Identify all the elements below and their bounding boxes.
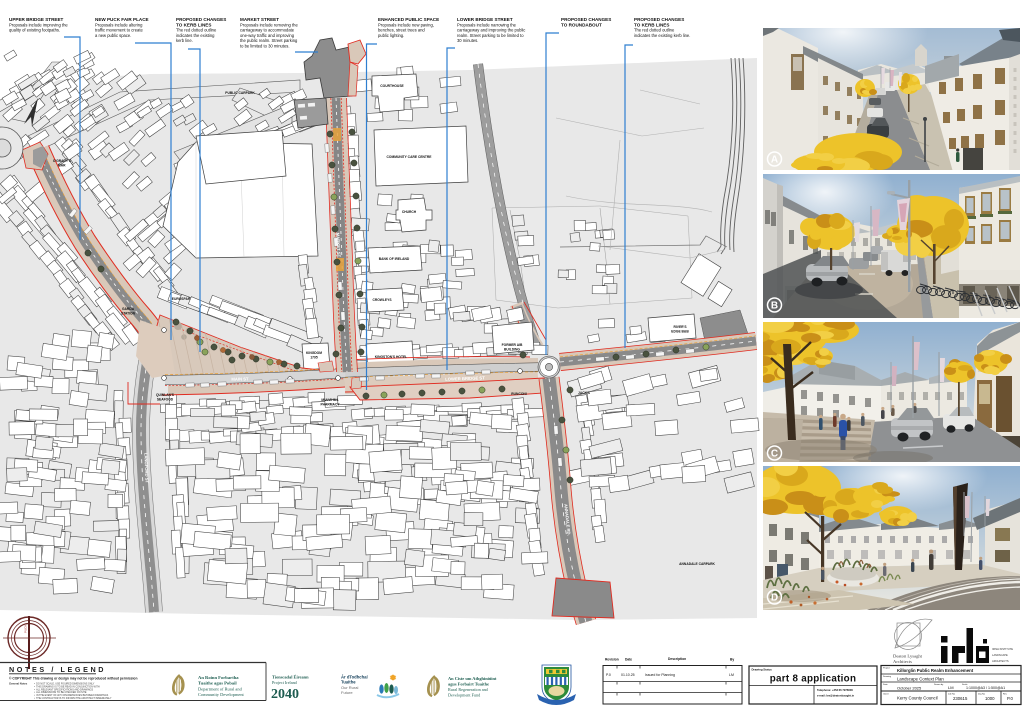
svg-text:QUINLAN'S: QUINLAN'S	[156, 393, 175, 397]
svg-text:indicates the existing kerb li: indicates the existing kerb line.	[634, 33, 690, 38]
svg-text:KINGDOM: KINGDOM	[306, 351, 322, 355]
svg-text:UPPER BRIDGE STREET: UPPER BRIDGE STREET	[9, 17, 64, 22]
svg-text:Kerry County Council: Kerry County Council	[897, 696, 938, 701]
svg-text:P.0: P.0	[606, 673, 611, 677]
svg-text:a new public space.: a new public space.	[95, 33, 131, 38]
svg-text:LANGFORD ST: LANGFORD ST	[143, 453, 149, 484]
svg-text:• THE CONTRACTOR IS TO INFORM: • THE CONTRACTOR IS TO INFORM THE ARCHIT…	[34, 697, 112, 700]
svg-text:CHURCH: CHURCH	[402, 210, 417, 214]
svg-text:BANK OF IRELAND: BANK OF IRELAND	[379, 257, 410, 261]
svg-text:Project Ireland: Project Ireland	[272, 680, 298, 685]
svg-text:one-way traffic and improving: one-way traffic and improving	[240, 33, 295, 38]
svg-text:public lighting.: public lighting.	[378, 33, 404, 38]
svg-text:FORMER AIB: FORMER AIB	[502, 343, 523, 347]
svg-text:Drawing: Drawing	[883, 675, 892, 678]
svg-text:Telephone: +353 66 7976600: Telephone: +353 66 7976600	[817, 688, 853, 692]
svg-text:LOWER BRIDGE STREET: LOWER BRIDGE STREET	[457, 17, 513, 22]
svg-text:Future: Future	[341, 690, 353, 695]
svg-text:RIVER'S: RIVER'S	[673, 325, 687, 329]
svg-text:IRISH INSTITUTE: IRISH INSTITUTE	[992, 647, 1013, 651]
svg-text:KINGSTON'S HOTEL: KINGSTON'S HOTEL	[375, 355, 407, 359]
svg-text:Landscape Context Plan: Landscape Context Plan	[897, 677, 944, 682]
svg-text:COURTHOUSE: COURTHOUSE	[380, 84, 404, 88]
svg-text:indicates the existing: indicates the existing	[176, 33, 215, 38]
svg-text:PROPOSED CHANGES: PROPOSED CHANGES	[561, 17, 611, 22]
svg-text:Development Fund: Development Fund	[448, 693, 481, 698]
svg-text:1795: 1795	[310, 356, 318, 360]
svg-text:The red dotted outline: The red dotted outline	[176, 28, 217, 33]
svg-text:LANDSCAPE: LANDSCAPE	[992, 653, 1008, 657]
svg-text:30 minutes.: 30 minutes.	[457, 38, 478, 43]
svg-text:Tuaithe agus Pobail: Tuaithe agus Pobail	[198, 681, 237, 686]
svg-text:Drawing Status: Drawing Status	[752, 668, 773, 672]
svg-text:to be limited to 30 minutes.: to be limited to 30 minutes.	[240, 44, 289, 49]
svg-text:BUILDING: BUILDING	[504, 348, 520, 352]
svg-text:kerb line.: kerb line.	[176, 38, 193, 43]
svg-text:Department of Rural and: Department of Rural and	[198, 687, 243, 692]
svg-text:LM: LM	[948, 685, 954, 690]
svg-text:TO KERB LINES: TO KERB LINES	[176, 22, 211, 27]
svg-text:quality of existing footpaths.: quality of existing footpaths.	[9, 28, 60, 33]
svg-text:Proposals include improving th: Proposals include improving the	[9, 22, 68, 27]
svg-text:Community Development: Community Development	[198, 692, 245, 697]
svg-text:Proposals include altering: Proposals include altering	[95, 22, 143, 27]
svg-text:© COPYRIGHT This drawing or de: © COPYRIGHT This drawing or design may n…	[9, 677, 137, 681]
svg-text:TO ROUNDABOUT: TO ROUNDABOUT	[561, 22, 602, 27]
svg-text:Tionscadal Éireann: Tionscadal Éireann	[272, 675, 309, 680]
svg-text:Date: Date	[625, 658, 632, 662]
svg-text:An Roinn Forbartha: An Roinn Forbartha	[198, 675, 239, 680]
svg-text:part 8 application: part 8 application	[770, 674, 857, 685]
svg-text:Project: Project	[883, 667, 890, 670]
svg-text:O'GRADY'S: O'GRADY'S	[53, 159, 72, 163]
svg-text:NOTES / LEGEND: NOTES / LEGEND	[9, 665, 106, 674]
svg-text:Killorglin Public Realm Enhanc: Killorglin Public Realm Enhancement	[897, 668, 974, 673]
svg-text:General Notes: General Notes	[9, 682, 28, 686]
svg-text:the public realm. Street parki: the public realm. Street parking	[240, 38, 298, 43]
svg-text:GARDA: GARDA	[122, 307, 135, 311]
svg-text:C: C	[771, 449, 778, 460]
svg-text:Date: Date	[883, 683, 888, 686]
svg-text:LM: LM	[729, 673, 734, 677]
svg-text:MARKET STREET: MARKET STREET	[240, 17, 279, 22]
svg-text:Issued for Planning: Issued for Planning	[645, 673, 675, 677]
svg-text:COMMUNITY CARE CENTRE: COMMUNITY CARE CENTRE	[387, 155, 433, 159]
svg-text:PUBLIC CARPARK: PUBLIC CARPARK	[225, 91, 255, 95]
svg-text:Revision: Revision	[605, 658, 619, 662]
svg-text:Architects: Architects	[893, 659, 912, 664]
svg-text:carriageway and improving the: carriageway and improving the public	[457, 28, 525, 33]
svg-text:ENHANCED PUBLIC SPACE: ENHANCED PUBLIC SPACE	[378, 17, 439, 22]
svg-text:realm. Street parking to be li: realm. Street parking to be limited to	[457, 33, 524, 38]
svg-text:SEAFOOD: SEAFOOD	[157, 398, 174, 402]
svg-text:PHARMACY: PHARMACY	[320, 403, 340, 407]
svg-text:D: D	[771, 593, 778, 604]
svg-text:MAIN ST: MAIN ST	[231, 376, 249, 381]
svg-text:EUROSPAR: EUROSPAR	[172, 297, 191, 301]
svg-text:benches, street trees and: benches, street trees and	[378, 28, 425, 33]
svg-text:NEW PUCK FAIR PLACE: NEW PUCK FAIR PLACE	[95, 17, 149, 22]
svg-text:October 2025: October 2025	[897, 686, 922, 691]
svg-text:Proposals include removing the: Proposals include removing the	[240, 22, 298, 27]
svg-text:Proposals include new paving,: Proposals include new paving,	[378, 22, 434, 27]
svg-text:PUCK: PUCK	[24, 625, 28, 633]
svg-text:carriageway to accommodate: carriageway to accommodate	[240, 28, 295, 33]
svg-text:Tuaithe: Tuaithe	[341, 680, 356, 685]
svg-text:CROWLEYS: CROWLEYS	[372, 298, 392, 302]
svg-text:RUNCONI: RUNCONI	[511, 392, 526, 396]
svg-text:B: B	[771, 301, 778, 312]
svg-text:ARCHITECTS: ARCHITECTS	[992, 659, 1009, 663]
svg-text:P.0: P.0	[1007, 696, 1014, 701]
svg-text:A: A	[771, 155, 778, 166]
svg-text:Deaton Lysaght: Deaton Lysaght	[893, 654, 923, 659]
svg-text:MULVIHILL: MULVIHILL	[321, 398, 338, 402]
svg-text:BAR: BAR	[58, 164, 66, 168]
svg-text:agus Forbairt Tuaithe: agus Forbairt Tuaithe	[448, 682, 489, 687]
svg-text:An Ciste um Athghiniúint: An Ciste um Athghiniúint	[448, 676, 497, 681]
svg-text:1:1000@A3 / 1:500@A1: 1:1000@A3 / 1:500@A1	[966, 686, 1005, 690]
svg-text:JACK'S: JACK'S	[578, 391, 591, 395]
svg-text:EDGE B&B: EDGE B&B	[671, 330, 689, 334]
svg-text:traffic movement to create: traffic movement to create	[95, 28, 143, 33]
svg-text:Rural Regeneration and: Rural Regeneration and	[448, 687, 489, 692]
svg-text:ANNADALE CARPARK: ANNADALE CARPARK	[679, 562, 715, 566]
svg-text:Proposals include narrowing th: Proposals include narrowing the	[457, 22, 517, 27]
svg-text:e-mail: lee@deatonlysaght.ie: e-mail: lee@deatonlysaght.ie	[817, 694, 854, 698]
svg-text:PROPOSED CHANGES: PROPOSED CHANGES	[176, 17, 226, 22]
svg-text:Client: Client	[883, 693, 889, 696]
svg-text:230615: 230615	[953, 696, 968, 701]
svg-text:The red dotted outline: The red dotted outline	[634, 28, 675, 33]
svg-text:By: By	[730, 658, 734, 662]
svg-text:2040: 2040	[271, 687, 299, 702]
svg-text:PROPOSED CHANGES: PROPOSED CHANGES	[634, 17, 684, 22]
svg-text:1000: 1000	[985, 696, 995, 701]
svg-text:TO KERB LINES: TO KERB LINES	[634, 22, 669, 27]
svg-text:STATION: STATION	[121, 312, 136, 316]
svg-text:Description: Description	[668, 657, 686, 661]
svg-text:01.10.25: 01.10.25	[621, 673, 635, 677]
svg-text:Drawn by: Drawn by	[934, 683, 944, 686]
